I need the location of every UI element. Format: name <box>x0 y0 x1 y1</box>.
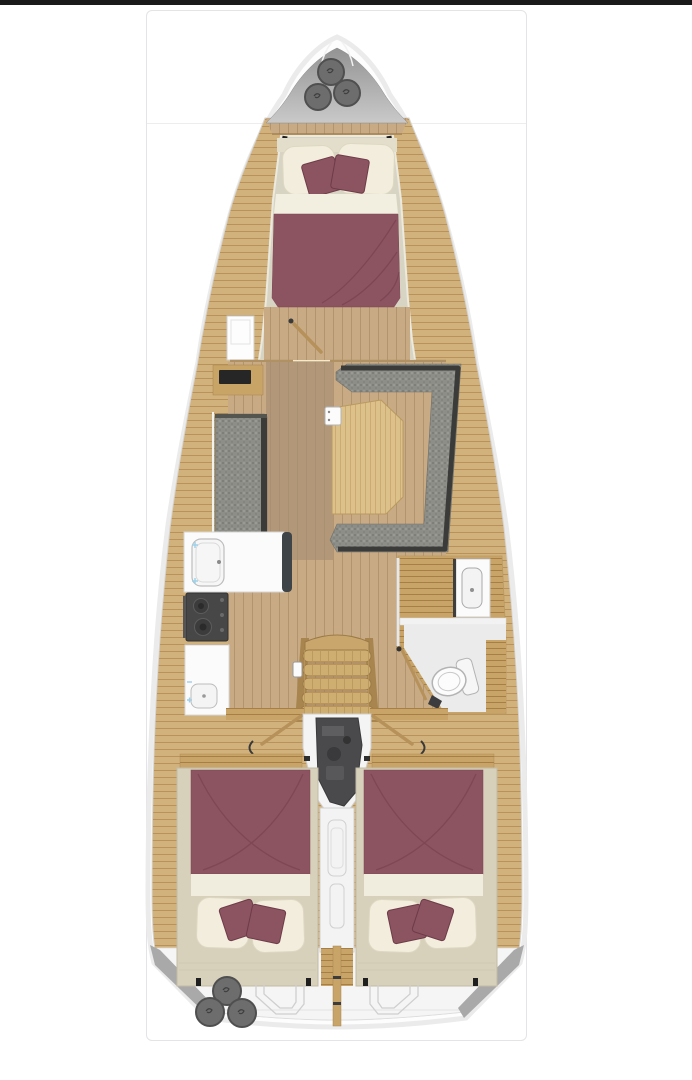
aft-cabin-starboard <box>356 754 497 986</box>
galley-sink <box>184 532 292 592</box>
companionway-stairs <box>293 635 379 722</box>
port-settee <box>213 412 267 540</box>
port-cabinet <box>213 365 263 395</box>
yacht-floor-plan <box>0 0 692 1080</box>
saloon-table <box>325 400 403 514</box>
forward-berth <box>272 138 400 307</box>
accent-pillow <box>330 154 369 193</box>
aft-cabin-port <box>177 754 318 986</box>
aft-berth-port <box>179 770 316 970</box>
page <box>0 0 692 1080</box>
aft-berth-starboard <box>358 770 495 970</box>
keel-strip <box>333 946 341 1026</box>
table-latch <box>325 407 341 425</box>
head-vanity <box>453 559 490 617</box>
stair-latch <box>293 662 302 677</box>
galley-stove <box>183 593 228 641</box>
galley-counter <box>185 645 229 715</box>
